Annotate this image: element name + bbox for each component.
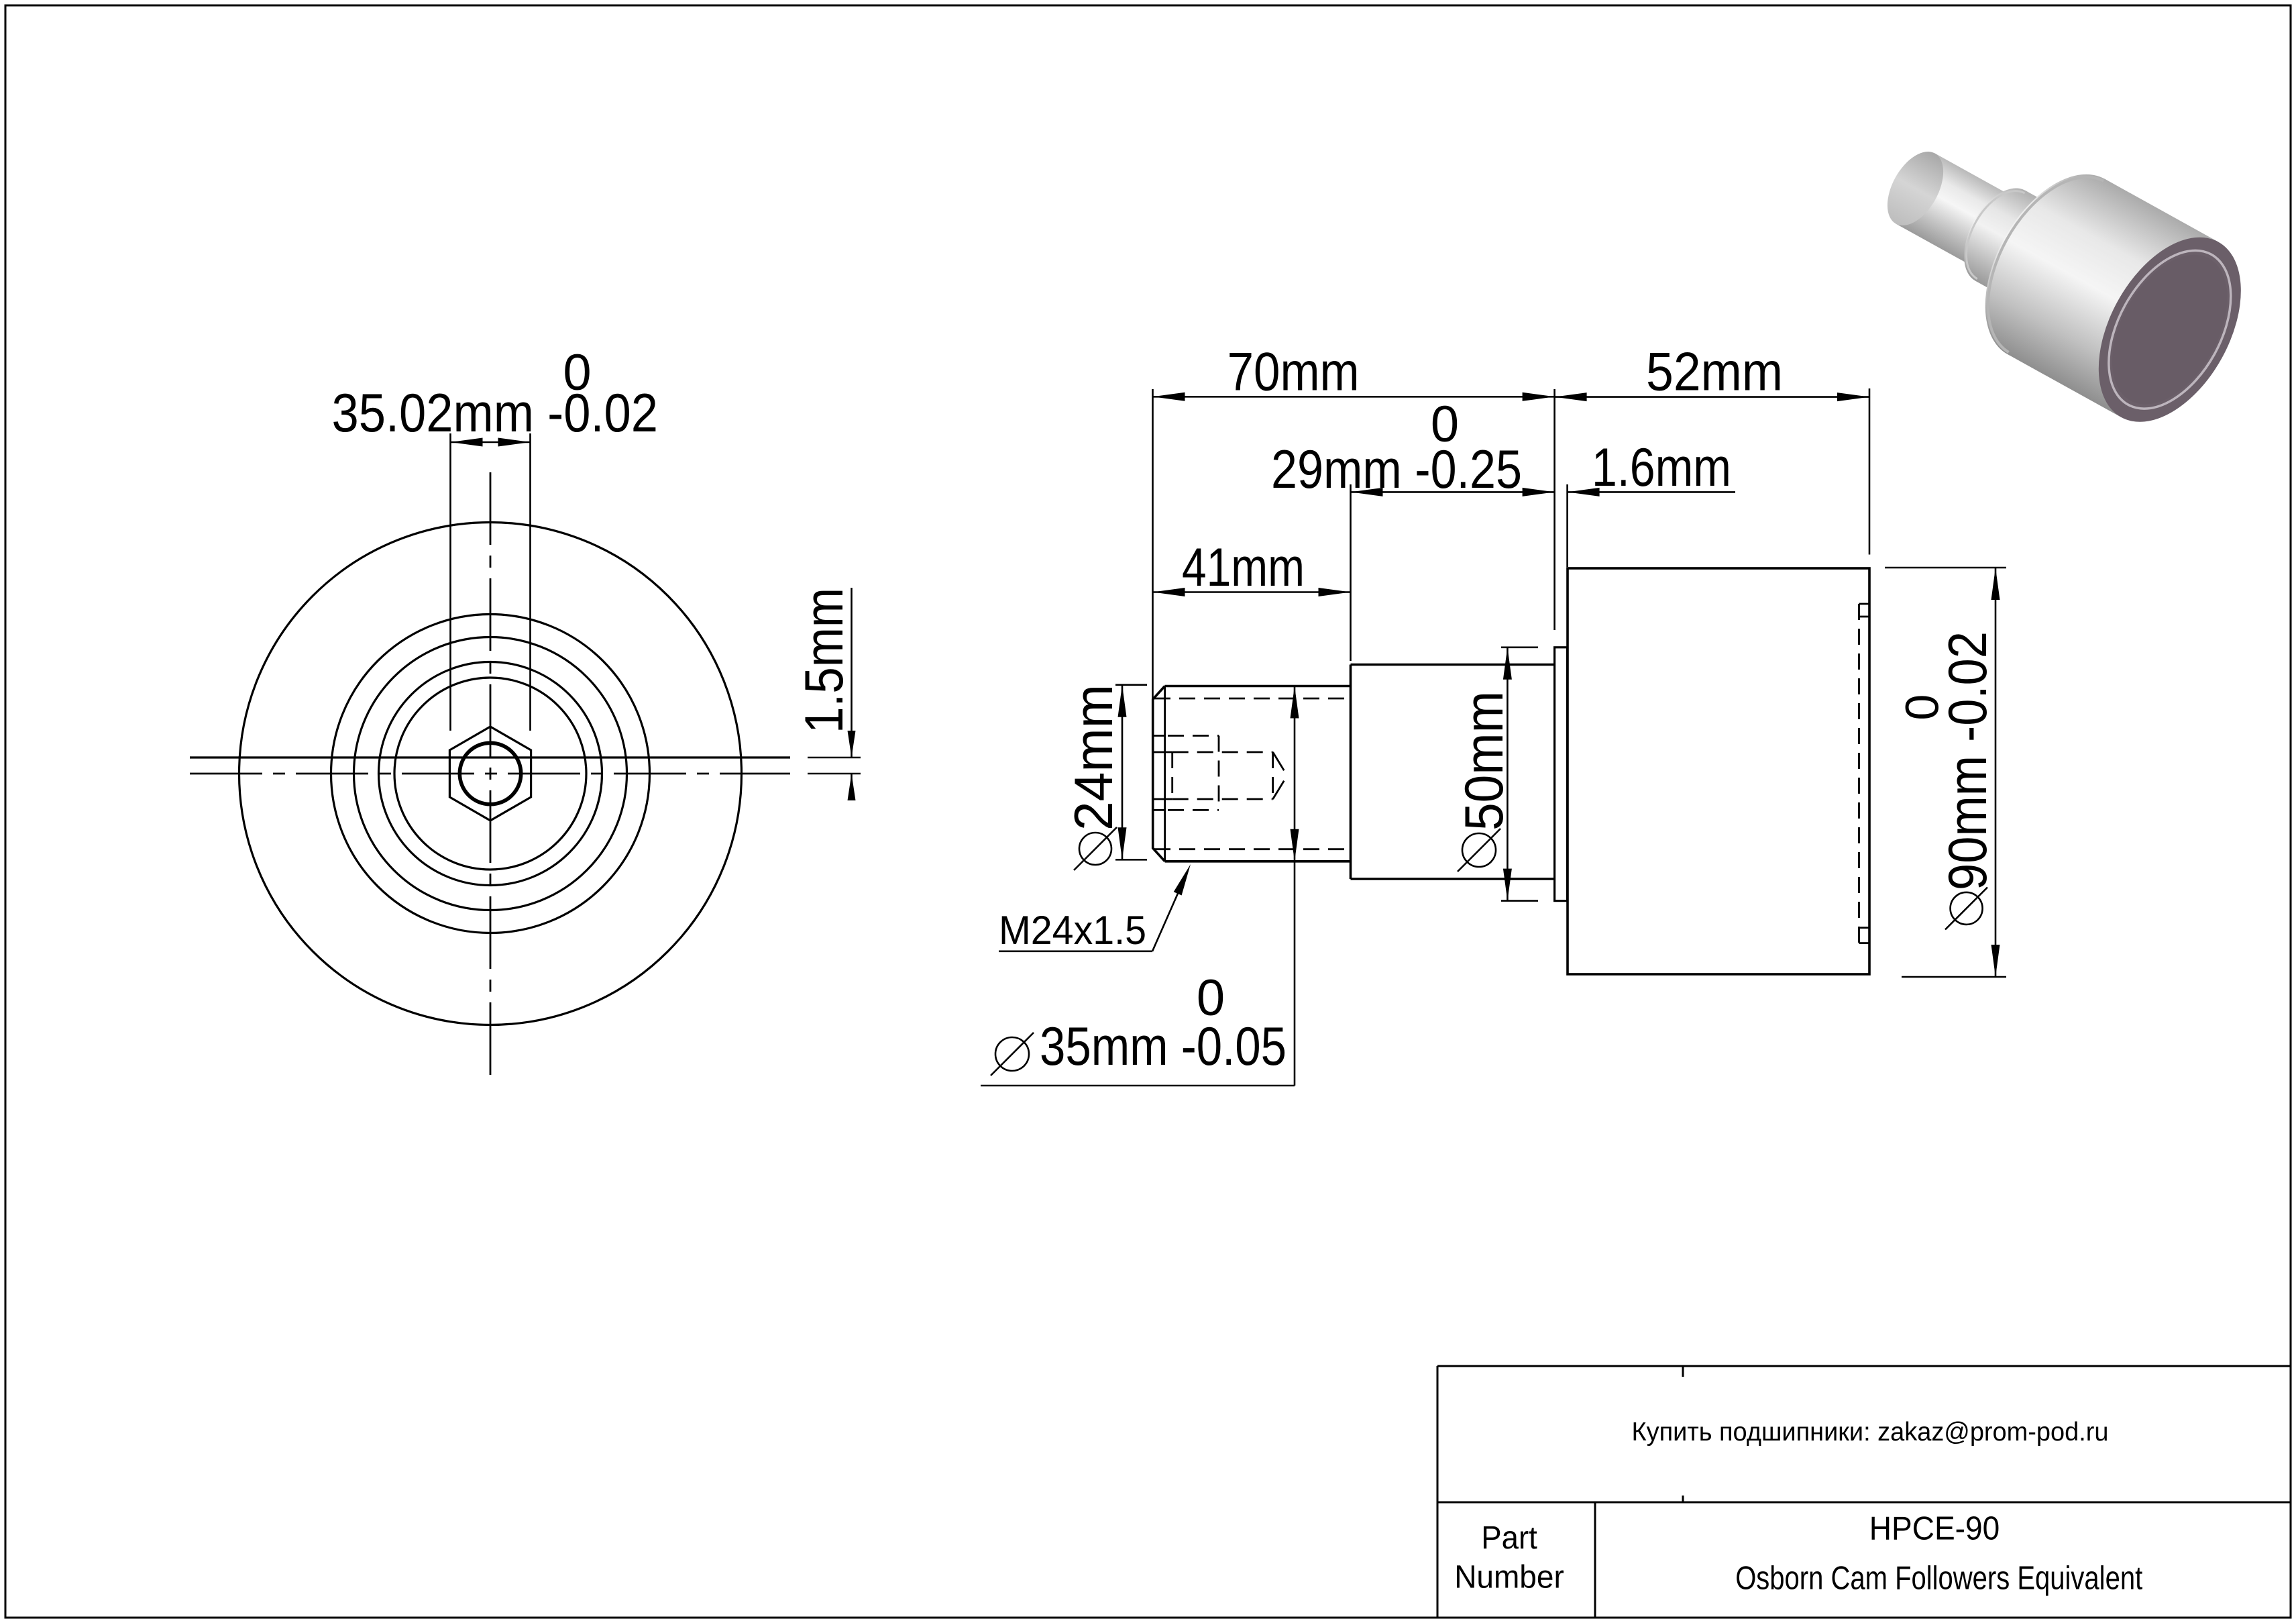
svg-text:Number: Number <box>1454 1560 1564 1595</box>
svg-text:1.6mm: 1.6mm <box>1592 437 1731 498</box>
svg-text:52mm: 52mm <box>1646 342 1783 402</box>
svg-text:Купить подшипники: zakaz@prom-: Купить подшипники: zakaz@prom-pod.ru <box>1632 1418 2109 1447</box>
svg-text:50mm: 50mm <box>1454 691 1515 831</box>
svg-text:M24x1.5: M24x1.5 <box>999 908 1146 953</box>
svg-text:24mm: 24mm <box>1064 684 1124 831</box>
svg-text:0: 0 <box>1431 396 1459 453</box>
svg-text:Osborn Cam Followers Equivalen: Osborn Cam Followers Equivalent <box>1735 1561 2142 1597</box>
svg-text:29mm -0.25: 29mm -0.25 <box>1271 439 1522 500</box>
svg-text:0: 0 <box>1896 694 1949 721</box>
svg-text:1.5mm: 1.5mm <box>794 588 855 733</box>
svg-text:35.02mm -0.02: 35.02mm -0.02 <box>332 383 659 443</box>
svg-text:HPCE-90: HPCE-90 <box>1869 1510 2000 1547</box>
svg-text:Part: Part <box>1481 1520 1537 1556</box>
svg-text:70mm: 70mm <box>1227 342 1360 402</box>
svg-text:35mm -0.05: 35mm -0.05 <box>1040 1016 1287 1077</box>
svg-text:0: 0 <box>563 344 591 401</box>
svg-text:90mm -0.02: 90mm -0.02 <box>1938 631 1998 890</box>
svg-text:0: 0 <box>1197 970 1225 1027</box>
svg-text:41mm: 41mm <box>1182 537 1305 598</box>
